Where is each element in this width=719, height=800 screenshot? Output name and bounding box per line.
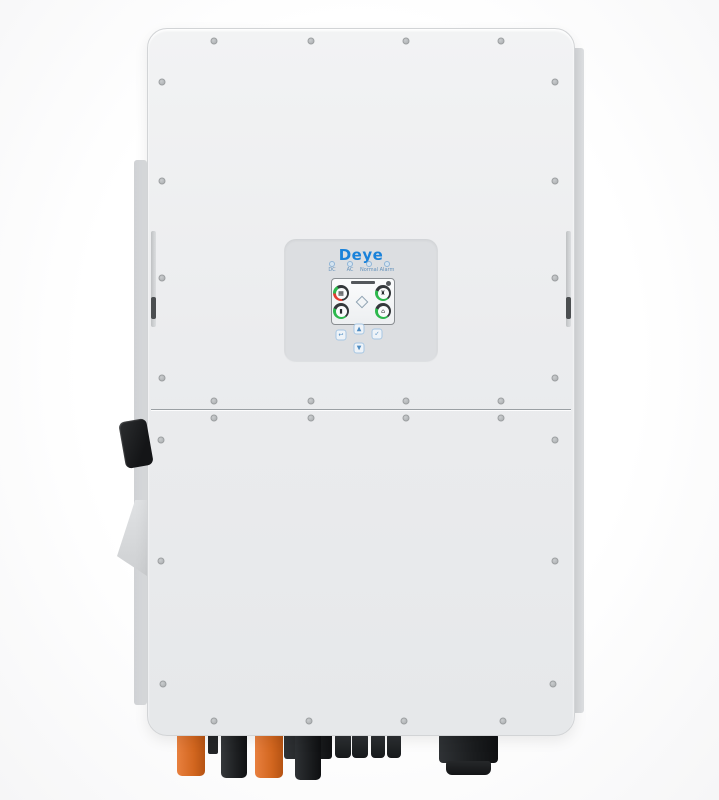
screw: [552, 178, 559, 185]
screw: [403, 38, 410, 45]
screw: [308, 398, 315, 405]
screw: [306, 718, 313, 725]
screw: [211, 38, 218, 45]
screw: [158, 558, 165, 565]
pv-gauge: ▦: [333, 285, 349, 301]
screw: [159, 275, 166, 282]
screw: [498, 38, 505, 45]
grid-gauge: ♜: [375, 285, 391, 301]
cabinet-seam: [151, 409, 571, 410]
screw: [211, 718, 218, 725]
battery1-positive-connector: [177, 733, 205, 776]
solar-panel-icon: ▦: [333, 285, 349, 301]
product-photo: Deye DCACNormalAlarm ▦♜▮⌂ ▲↩✓▼: [0, 0, 719, 800]
alarm-led-label: Alarm: [376, 267, 398, 273]
screw: [308, 415, 315, 422]
lcd-screen: ▦♜▮⌂: [331, 278, 395, 325]
alarm-led: Alarm: [376, 261, 398, 273]
screw: [552, 558, 559, 565]
inverter-body: Deye DCACNormalAlarm ▦♜▮⌂ ▲↩✓▼: [147, 28, 575, 736]
screw: [308, 38, 315, 45]
screw: [550, 681, 557, 688]
screw: [552, 375, 559, 382]
side-bracket-wedge: [117, 500, 150, 578]
screw: [211, 415, 218, 422]
pv-mc4-connector-pair-2: [371, 733, 401, 758]
side-handle-left: [151, 231, 156, 327]
side-handle-right: [566, 231, 571, 327]
screw: [498, 398, 505, 405]
up-button: ▲: [354, 324, 365, 335]
esc-button: ↩: [336, 330, 347, 341]
load-gauge: ⌂: [375, 303, 391, 319]
battery2-negative-connector: [284, 733, 332, 759]
grid-tower-icon: ♜: [375, 285, 391, 301]
screw: [159, 79, 166, 86]
battery2-positive-connector: [255, 733, 283, 778]
screw: [552, 275, 559, 282]
screw: [211, 398, 218, 405]
down-button: ▼: [354, 343, 365, 354]
screw: [403, 398, 410, 405]
screw: [159, 178, 166, 185]
display-panel: Deye DCACNormalAlarm ▦♜▮⌂ ▲↩✓▼: [284, 239, 438, 363]
screw: [401, 718, 408, 725]
enter-button: ✓: [372, 329, 383, 340]
screw: [159, 375, 166, 382]
screw: [158, 437, 165, 444]
battery1-negative-connector: [221, 733, 247, 778]
home-icon: ⌂: [375, 303, 391, 319]
screw: [500, 718, 507, 725]
screw: [552, 79, 559, 86]
pv-mc4-connector-pair-1: [335, 733, 368, 758]
screw: [403, 415, 410, 422]
ac-cable-gland: [439, 733, 498, 763]
battery-gauge: ▮: [333, 303, 349, 319]
battery-icon: ▮: [333, 303, 349, 319]
screw: [498, 415, 505, 422]
breather-valve: [208, 733, 218, 754]
screen-status-bar: [351, 281, 375, 284]
energy-flow-icon: [356, 296, 369, 309]
screw: [552, 437, 559, 444]
screw: [160, 681, 167, 688]
